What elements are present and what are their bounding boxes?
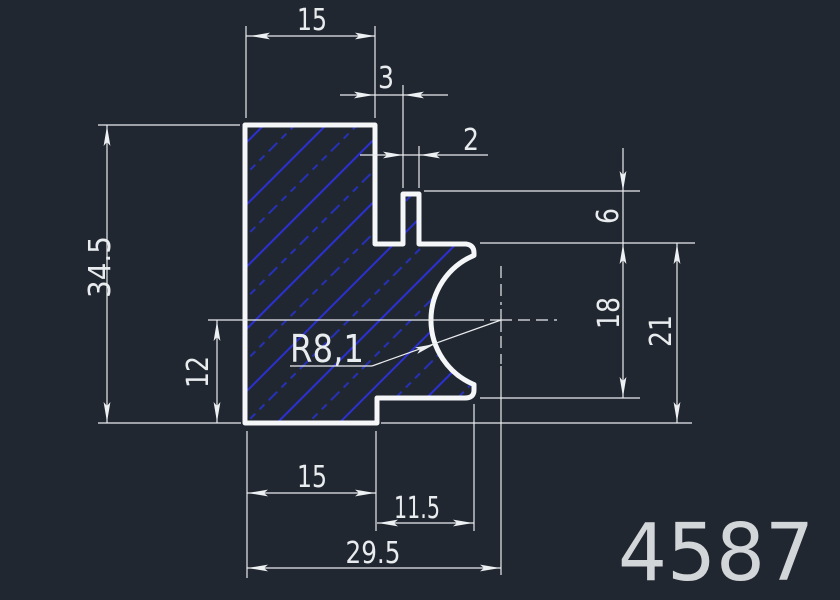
dim-right-height: 21 [644,315,679,347]
dim-bottom-width: 15 [297,460,327,495]
dim-slot-width: 2 [463,123,479,158]
dim-tab-height: 6 [591,208,626,224]
part-number: 4587 [618,507,814,599]
dim-groove-offset: 3 [378,61,394,96]
dim-overall-width: 29.5 [346,536,401,571]
dim-top-width: 15 [297,3,327,38]
dim-step-width: 11.5 [394,491,440,526]
dim-center-height: 12 [181,356,216,388]
dim-step-depth: 18 [592,297,627,329]
profile-drawing: 15 3 2 6 18 21 34.5 12 15 11.5 29.5 R8,1… [0,0,840,600]
dim-overall-height: 34.5 [83,236,118,298]
cad-drawing-canvas[interactable]: 15 3 2 6 18 21 34.5 12 15 11.5 29.5 R8,1… [0,0,840,600]
dim-radius-label: R8,1 [290,327,364,371]
